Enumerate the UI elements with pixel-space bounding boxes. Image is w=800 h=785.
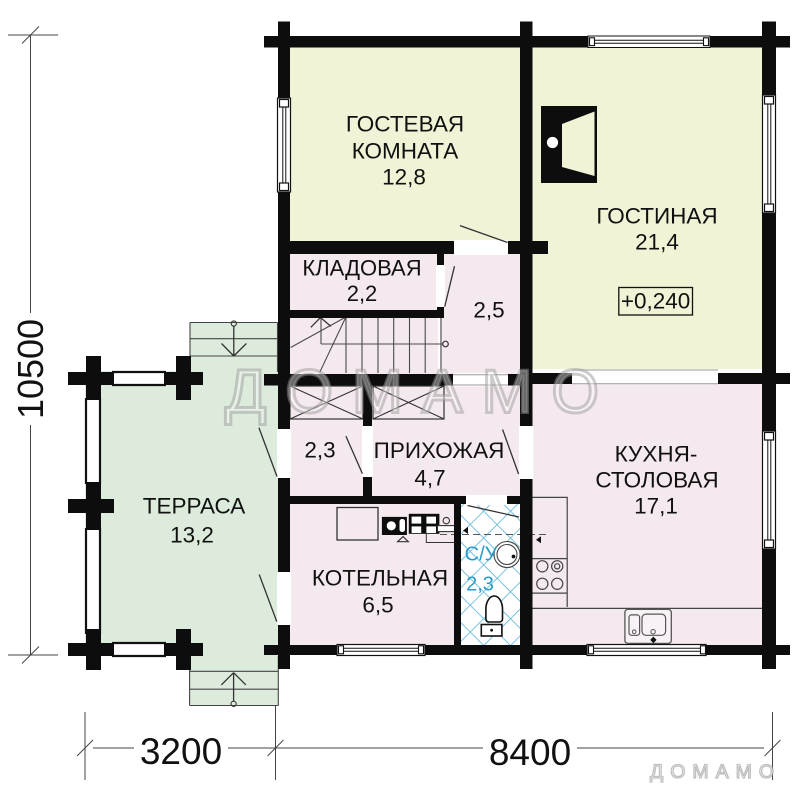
- svg-text:ДОМАМО: ДОМАМО: [650, 761, 780, 783]
- svg-text:С/У: С/У: [465, 544, 498, 566]
- svg-text:10500: 10500: [10, 319, 51, 419]
- svg-text:2,2: 2,2: [347, 281, 378, 306]
- svg-text:2,5: 2,5: [473, 298, 504, 323]
- svg-text:+0,240: +0,240: [621, 289, 690, 314]
- svg-text:ГОСТЕВАЯ: ГОСТЕВАЯ: [346, 112, 464, 137]
- svg-text:12,8: 12,8: [382, 165, 426, 190]
- svg-text:ТЕРРАСА: ТЕРРАСА: [143, 494, 246, 519]
- svg-text:6,5: 6,5: [362, 593, 393, 618]
- svg-text:3200: 3200: [140, 731, 222, 772]
- svg-text:8400: 8400: [489, 732, 571, 773]
- svg-text:4,7: 4,7: [414, 466, 445, 491]
- svg-text:2,3: 2,3: [304, 438, 335, 463]
- svg-text:КОТЕЛЬНАЯ: КОТЕЛЬНАЯ: [312, 566, 448, 591]
- svg-text:СТОЛОВАЯ: СТОЛОВАЯ: [595, 468, 718, 493]
- svg-text:17,1: 17,1: [634, 494, 678, 519]
- svg-text:КОМНАТА: КОМНАТА: [352, 139, 459, 164]
- svg-text:ПРИХОЖАЯ: ПРИХОЖАЯ: [374, 438, 505, 463]
- svg-text:КУХНЯ-: КУХНЯ-: [615, 442, 698, 467]
- svg-text:13,2: 13,2: [170, 523, 214, 548]
- svg-text:21,4: 21,4: [635, 230, 679, 255]
- svg-text:2,3: 2,3: [466, 574, 494, 596]
- svg-text:ГОСТИНАЯ: ГОСТИНАЯ: [596, 204, 717, 229]
- svg-text:КЛАДОВАЯ: КЛАДОВАЯ: [302, 256, 421, 281]
